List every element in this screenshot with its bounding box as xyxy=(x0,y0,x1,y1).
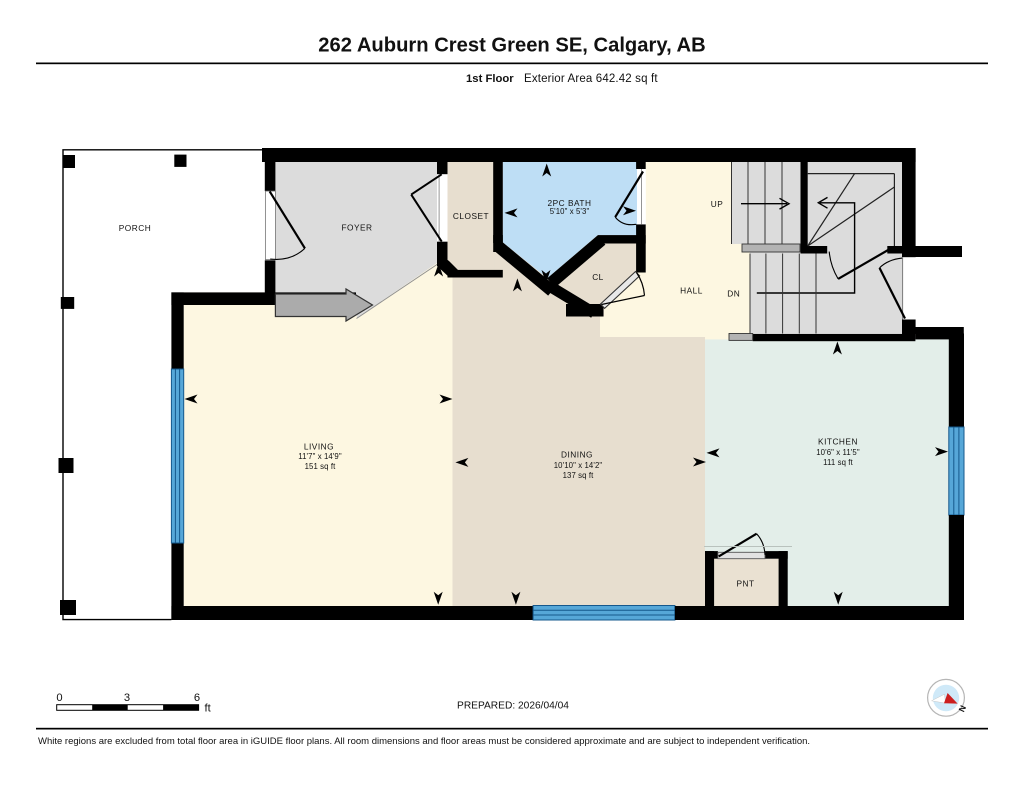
svg-text:151 sq ft: 151 sq ft xyxy=(305,462,337,471)
svg-text:PREPARED: 2026/04/04: PREPARED: 2026/04/04 xyxy=(457,701,569,712)
svg-text:HALL: HALL xyxy=(680,286,703,296)
svg-text:11'7" x 14'9": 11'7" x 14'9" xyxy=(298,452,342,461)
svg-text:Exterior Area 642.42 sq ft: Exterior Area 642.42 sq ft xyxy=(524,73,658,85)
svg-text:5'10" x 5'3": 5'10" x 5'3" xyxy=(550,207,590,216)
svg-text:PNT: PNT xyxy=(736,579,754,589)
svg-text:262 Auburn Crest Green SE, Cal: 262 Auburn Crest Green SE, Calgary, AB xyxy=(318,35,705,57)
svg-text:FOYER: FOYER xyxy=(341,223,372,233)
svg-text:6: 6 xyxy=(194,692,200,704)
svg-text:White regions are excluded fro: White regions are excluded from total fl… xyxy=(38,736,810,747)
svg-text:111 sq ft: 111 sq ft xyxy=(823,458,853,467)
svg-text:0: 0 xyxy=(56,692,62,704)
svg-text:10'6" x 11'5": 10'6" x 11'5" xyxy=(816,448,860,457)
svg-text:CLOSET: CLOSET xyxy=(453,211,489,221)
svg-text:PORCH: PORCH xyxy=(119,223,151,233)
svg-text:CL: CL xyxy=(592,272,604,282)
svg-text:ft: ft xyxy=(205,703,212,715)
svg-text:KITCHEN: KITCHEN xyxy=(818,437,858,447)
svg-text:LIVING: LIVING xyxy=(304,442,334,452)
svg-text:137 sq ft: 137 sq ft xyxy=(563,471,595,480)
svg-text:3: 3 xyxy=(124,692,130,704)
svg-text:DINING: DINING xyxy=(561,450,593,460)
svg-text:UP: UP xyxy=(711,199,724,209)
svg-text:10'10" x 14'2": 10'10" x 14'2" xyxy=(554,461,603,470)
svg-text:DN: DN xyxy=(727,289,740,299)
svg-text:1st Floor: 1st Floor xyxy=(466,73,514,85)
